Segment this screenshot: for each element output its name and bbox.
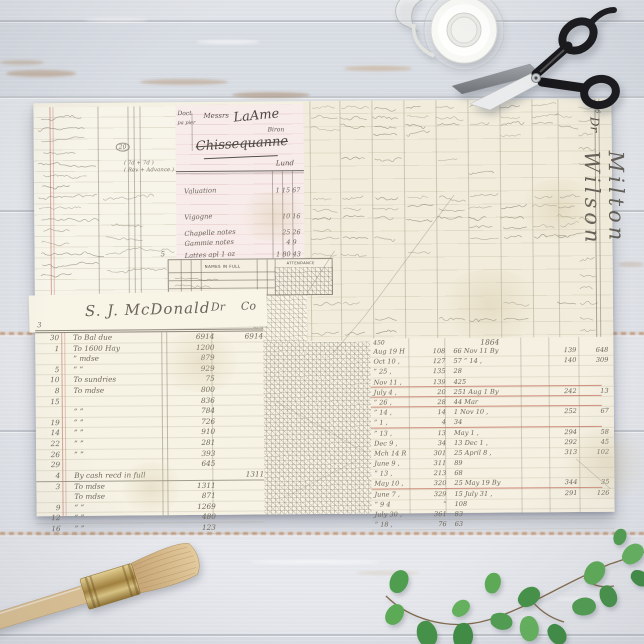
receipt-row: Gammie notes 4 9 [176, 238, 304, 249]
mc-desc: ” ” [65, 449, 172, 459]
yl-c: 292 [547, 438, 577, 447]
vine-leaf [619, 542, 644, 567]
yl-date: ” 25 , [370, 368, 413, 378]
yl-d: 309 [576, 356, 613, 365]
yl-c [547, 458, 577, 467]
receipt-name-suffix: Biron [268, 126, 285, 133]
yl-date: ” 14 , [371, 408, 414, 418]
yl-b: 28 [445, 367, 546, 377]
mc-amount2: 6914 [217, 331, 263, 341]
mcdonald-co-label: Co [241, 299, 256, 312]
bracket-note: ( 7d + 7d ) ( Rev + Advance ) [124, 160, 174, 174]
vine-leaves [381, 526, 644, 644]
receipt-row-col1: 10 [264, 212, 290, 220]
mc-amount2 [218, 374, 264, 384]
mcdonald-ledger-table: 30 To Bal due 6914 69141 To 1600 Hay 120… [35, 328, 264, 516]
receipt-row-col2: 67 [292, 186, 304, 194]
mc-amount2 [218, 406, 264, 416]
mcdonald-corner-mark: 3 [37, 321, 42, 329]
yl-a: 127 [413, 357, 445, 366]
mc-day: 30 [35, 333, 64, 343]
register-cell-rule [191, 260, 192, 295]
mc-amount2 [218, 363, 264, 373]
mc-amount2 [218, 416, 264, 426]
yl-date: Aug 19 H [370, 347, 413, 357]
mc-day: 4 [36, 471, 65, 481]
year-corner-mark: 450 [373, 340, 385, 347]
wood-scuff [0, 60, 44, 65]
register-row-rule [169, 279, 275, 280]
mc-amount2 [219, 512, 265, 522]
mc-desc: To sundries [64, 375, 171, 385]
receipt-corner-label: Doct [177, 110, 191, 117]
yl-d: 126 [577, 488, 614, 497]
receipt-name-2: Chissequanne [195, 134, 288, 155]
yl-c [548, 509, 578, 518]
mc-day: 14 [36, 429, 65, 439]
receipt-row-col1: 4 [264, 238, 290, 246]
yl-a: 135 [413, 367, 445, 376]
mc-amount2 [218, 427, 264, 437]
register-attendance-header: ATTENDANCE [287, 261, 315, 265]
yl-a: 361 [415, 510, 447, 519]
yl-b: 13 Dec 1 , [446, 438, 547, 448]
column-rule [371, 101, 374, 341]
mc-amount2 [218, 438, 264, 448]
receipt-row-col1: 25 [264, 228, 290, 236]
mc-desc: To mdse [64, 385, 171, 395]
receipt-row-col1: 1 15 [264, 186, 290, 194]
paint-brush [0, 532, 220, 644]
column-rule [435, 100, 438, 340]
vine-leaf [516, 585, 542, 608]
mc-desc: ” mdse [64, 353, 171, 363]
mc-day: 15 [36, 397, 65, 407]
mc-desc: To mdse [65, 481, 172, 491]
mc-desc: ” ” [65, 513, 172, 523]
mc-desc: By cash recd in full [65, 470, 172, 480]
wood-scuff [140, 79, 228, 85]
yl-b: 89 [446, 458, 547, 468]
mc-amount2 [218, 385, 264, 395]
receipt-row-col2: 16 [292, 212, 304, 220]
scissors [428, 2, 644, 118]
vine-leaf [480, 570, 506, 597]
receipt-margin-label: pa pier [178, 120, 196, 126]
vine-leaf [381, 601, 409, 628]
corner-mark: 5 [161, 250, 166, 258]
vine-leaf [598, 585, 618, 608]
receipt-double-rule [176, 170, 304, 172]
yl-date: June 7 , [371, 490, 414, 500]
mc-amount2 [218, 448, 264, 458]
mc-desc: ” ” [65, 428, 172, 438]
yl-a: 329 [414, 490, 446, 499]
receipt-row: Vigogne 10 16 [176, 212, 304, 223]
attendance-grid [275, 267, 333, 295]
decoupage-sheet: 20 ( 7d + 7d ) ( Rev + Advance ) 5 Doct … [33, 99, 614, 517]
column-rule [49, 107, 51, 295]
strike-line [204, 155, 278, 159]
yl-d: 102 [577, 448, 614, 457]
leaf-vine [378, 526, 644, 644]
receipt-salutation: Messrs [203, 112, 228, 120]
mc-desc: ” ” [64, 364, 171, 374]
yl-b: 1 Nov 10 , [446, 407, 547, 417]
register-row-rule [169, 271, 275, 272]
yl-d: 58 [577, 427, 614, 436]
mc-day: 29 [36, 460, 65, 470]
vine-leaf [515, 614, 543, 644]
yl-c [547, 468, 577, 477]
mc-day: 26 [36, 450, 65, 460]
yl-d [576, 366, 613, 375]
mc-desc: ” ” [65, 438, 172, 448]
script-ledger: 346 Dr Milton Wilson [303, 99, 613, 341]
column-rule [467, 100, 470, 340]
vine-leaf [609, 526, 630, 547]
yl-c [548, 499, 578, 508]
mc-day: 22 [36, 439, 65, 449]
register-cell-rule [275, 259, 276, 294]
wood-scuff [6, 70, 76, 77]
year-ledger: 450 1864 Aug 19 H 108 66 Nov 11 By 139 6… [370, 337, 614, 514]
mc-day: 12 [37, 513, 66, 523]
column-rule [139, 106, 141, 294]
wood-scuff [232, 92, 310, 98]
mc-day: 8 [36, 386, 65, 396]
yl-b: 108 [447, 499, 548, 509]
yl-d: 67 [577, 407, 614, 416]
yl-d: 45 [577, 437, 614, 446]
yl-b: 15 July 31 , [446, 489, 547, 499]
receipt-row-label: Vigogne [184, 212, 212, 221]
vine-leaf [628, 566, 644, 590]
mcdonald-dr-label: Dr [211, 300, 225, 313]
yl-date: Dec 9 , [371, 439, 414, 449]
column-rule [339, 101, 342, 341]
mc-day: 5 [35, 365, 64, 375]
receipt-row-col1: 1 80 [265, 250, 291, 258]
mc-amount2 [219, 501, 265, 511]
mc-amount2 [218, 353, 264, 363]
mc-amount2 [219, 480, 265, 490]
receipt-name-1: LaAme [233, 106, 280, 125]
vine-leaf [546, 622, 568, 644]
mc-desc: ” ” [65, 406, 172, 416]
yl-date: Oct 10 , [370, 357, 413, 367]
register-cell-rule [267, 259, 268, 294]
yl-c: 139 [546, 346, 576, 355]
column-rule [403, 100, 406, 340]
yl-c: 140 [546, 356, 576, 365]
wood-scuff [84, 18, 148, 22]
scissors-finger-rest [590, 10, 614, 24]
yl-c: 252 [547, 407, 577, 416]
receipt-tail-note: Lund [276, 159, 294, 167]
yl-c: 294 [547, 428, 577, 437]
mc-amount2 [217, 342, 263, 352]
ledger-owner-script: Milton Wilson [580, 151, 629, 339]
register-names-header: NAMES IN FULL [205, 264, 241, 269]
vine-leaf [570, 594, 598, 620]
mc-day [36, 492, 65, 502]
yl-c [546, 366, 576, 375]
yl-a: ” [415, 500, 447, 509]
mc-desc [65, 460, 172, 470]
mc-desc: To mdse [65, 491, 172, 501]
yl-a: 301 [414, 449, 446, 458]
yl-d [577, 458, 614, 467]
scissors-handle-ring-lower [582, 76, 619, 108]
mcdonald-title-script: S. J. McDonald [85, 299, 211, 320]
mc-day [35, 354, 64, 364]
mc-day: 1 [35, 344, 64, 354]
register-cell-rule [201, 260, 202, 295]
yl-c: 291 [547, 489, 577, 498]
mc-day: 19 [36, 418, 65, 428]
yl-date: Mch 14 R [371, 449, 414, 459]
yl-date: ” 13 , [371, 429, 414, 439]
mc-desc: To Bal due [64, 332, 171, 342]
mc-day: 10 [36, 375, 65, 385]
mc-desc: To 1600 Hay [64, 343, 171, 353]
mc-desc: ” ” [65, 417, 172, 427]
mc-amount2 [218, 459, 264, 469]
photo-stage: 20 ( 7d + 7d ) ( Rev + Advance ) 5 Doct … [0, 0, 644, 644]
mc-amount2 [219, 522, 265, 532]
receipt-rows: Valuation 1 15 67Vigogne 10 16Chapelle n… [175, 104, 303, 105]
yl-d [578, 499, 615, 508]
column-rule [52, 107, 54, 295]
scissors-pivot-center [534, 76, 537, 79]
receipt-row-col2: 26 [292, 228, 304, 236]
mcdonald-heading-strip: S. J. McDonald Dr Co [29, 289, 268, 332]
yl-a: 13 [414, 429, 446, 438]
tape-dispenser-arm [396, 0, 422, 32]
yl-c: 313 [547, 448, 577, 457]
yl-b: 83 [447, 509, 548, 519]
scissors-highlight [540, 50, 564, 72]
wood-scuff [196, 40, 260, 44]
mc-amount2: 1311 [218, 469, 264, 479]
vine-leaf [579, 558, 610, 588]
vine-leaf [450, 598, 472, 618]
receipt-row-label: Chapelle notes [184, 228, 236, 238]
scissors-arm-lower [542, 82, 584, 88]
yl-a: 14 [414, 408, 446, 417]
yl-date: July 30 , [372, 510, 415, 520]
wood-scuff [250, 560, 380, 564]
mc-desc: ” ” [65, 502, 172, 512]
pink-receipt: Doct pa pier Messrs LaAme Biron Chissequ… [175, 104, 304, 262]
yl-d [578, 509, 615, 518]
column-rule [97, 107, 99, 295]
receipt-row-label: Valuation [184, 186, 217, 195]
column-rule [557, 99, 560, 339]
vine-leaf [384, 567, 414, 597]
mc-desc [65, 396, 172, 406]
receipt-row-col2: 43 [293, 250, 305, 258]
register-cell-rule [181, 260, 182, 295]
ledger-left-strip: 20 ( 7d + 7d ) ( Rev + Advance ) 5 [33, 106, 176, 295]
graph-paper-large [253, 342, 379, 515]
column-rule [499, 100, 502, 340]
mc-amount2 [219, 491, 265, 501]
yl-d: 648 [576, 346, 613, 355]
yl-a: 213 [414, 469, 446, 478]
column-rule [191, 113, 192, 151]
yl-a: 34 [414, 439, 446, 448]
column-rule [127, 107, 129, 295]
receipt-row-label: Gammie notes [184, 238, 234, 248]
yl-b: 25 April 8 , [446, 448, 547, 458]
yl-b: May 1 , [446, 428, 547, 438]
column-rule [531, 99, 534, 339]
mc-amount2 [218, 395, 264, 405]
column-rule [133, 106, 135, 294]
yl-a: 311 [414, 459, 446, 468]
yl-a: 108 [413, 347, 445, 356]
receipt-row: Valuation 1 15 67 [176, 186, 304, 197]
mc-day: 9 [37, 503, 66, 513]
yl-date: ” 9 4 [372, 500, 415, 510]
mc-day: 3 [36, 482, 65, 492]
vine-leaf [414, 619, 440, 644]
yl-d [577, 468, 614, 477]
yl-b: 68 [446, 469, 547, 479]
yl-b: 66 Nov 11 By [445, 346, 546, 356]
receipt-row-col2: 9 [292, 238, 304, 246]
yl-date: June 9 , [371, 459, 414, 469]
yl-b: 57 ” 14 , [445, 356, 546, 366]
yl-date: ” 13 , [371, 470, 414, 480]
mc-day [36, 407, 65, 417]
column-rule [309, 101, 312, 341]
brush-handle [0, 586, 87, 644]
year-heading: 1864 [480, 338, 499, 347]
